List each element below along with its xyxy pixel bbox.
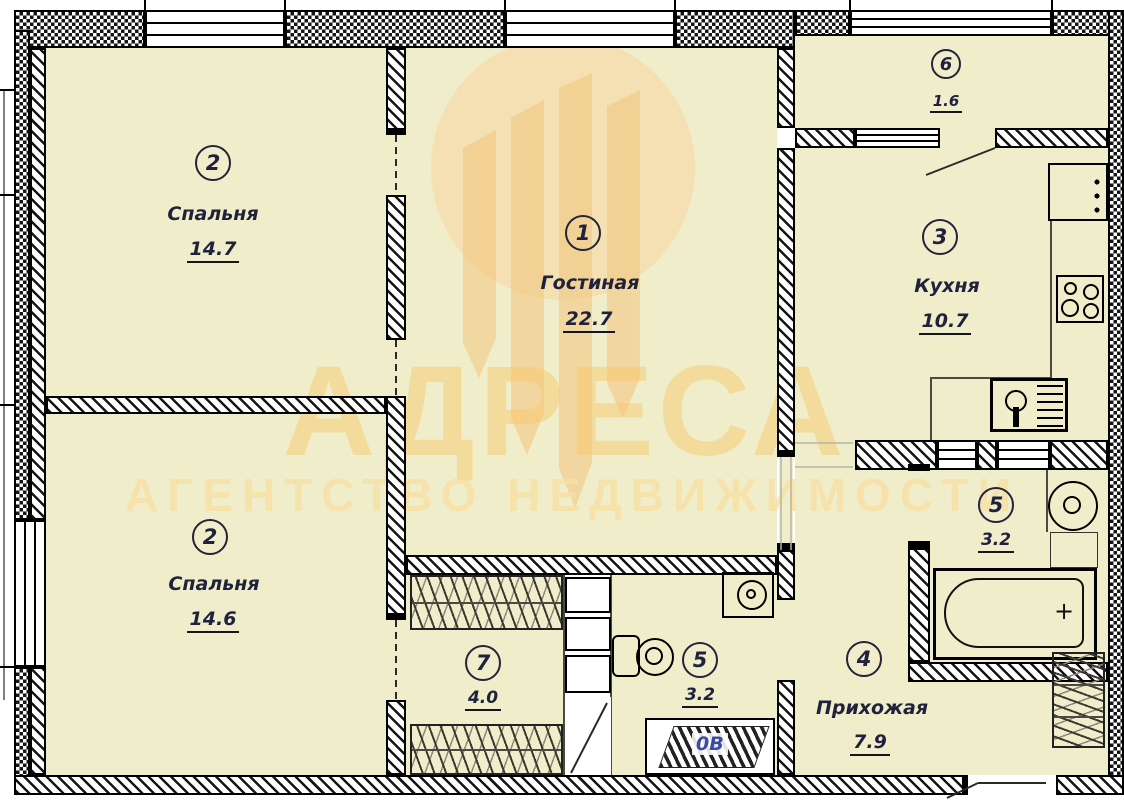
- door-gap-floor: [386, 135, 406, 195]
- room-number-bath: 5: [978, 487, 1014, 523]
- vent-label: 0В: [692, 733, 728, 755]
- room-area-bedroom-top: 14.7: [138, 238, 288, 260]
- door-jamb: [386, 128, 406, 135]
- room-area-kitchen: 10.7: [870, 310, 1020, 332]
- area-value: 10.7: [919, 310, 972, 335]
- room-number-bedroom-top: 2: [195, 145, 231, 181]
- wall-bedrooms-living: [386, 48, 406, 135]
- room-name-kitchen: Кухня: [872, 275, 1022, 297]
- room-area-wardrobe: 4.0: [408, 688, 558, 708]
- wall-balcony-kitchen: [795, 128, 855, 148]
- window-living: [505, 10, 675, 48]
- wall-top: [14, 10, 145, 48]
- room-area-living: 22.7: [514, 308, 664, 330]
- wall-bedrooms-living: [386, 195, 406, 340]
- wall-left-inner: [30, 48, 46, 520]
- vent-shaft-box: [565, 577, 611, 613]
- area-value: 22.7: [563, 308, 616, 333]
- bathtub-icon: +: [933, 568, 1097, 660]
- fridge-vents: [1094, 175, 1100, 213]
- burner: [1061, 299, 1079, 317]
- door-gap-floor: [777, 600, 795, 680]
- wall-living-kitchen: [777, 48, 795, 128]
- room-area-bath: 3.2: [921, 530, 1071, 550]
- door-jamb: [908, 464, 930, 471]
- area-value: 14.7: [187, 238, 240, 263]
- room-number-kitchen: 3: [922, 219, 958, 255]
- wall-hall-bath: [908, 548, 930, 662]
- room-number-balcony: 6: [931, 49, 961, 79]
- wall-wc-hall: [777, 680, 795, 775]
- wall-kitchen-hall: [977, 440, 997, 470]
- door-jamb: [777, 450, 795, 457]
- hall-closet-shelf: [1052, 652, 1105, 748]
- floor-plan: АДРЕСА АГЕНТСТВО НЕДВИЖИМОСТИ: [0, 0, 1124, 800]
- room-living-floor: [406, 48, 777, 555]
- vent-shaft-box: [565, 655, 611, 693]
- door-jamb: [962, 775, 968, 795]
- window-bedroom-top: [145, 10, 285, 48]
- wall-bottom: [1056, 775, 1124, 795]
- area-value: 14.6: [187, 608, 240, 633]
- wall-right: [1108, 10, 1124, 795]
- room-area-bedroom-bottom: 14.6: [138, 608, 288, 630]
- wc-door-clearance: [565, 697, 611, 775]
- wall-top-balcony: [795, 10, 850, 36]
- stove-icon: [1056, 275, 1104, 323]
- door-panel-bath: [937, 440, 977, 470]
- wall-bedrooms-living: [386, 700, 406, 775]
- room-area-wc: 3.2: [625, 685, 775, 705]
- shelf-line: [1054, 716, 1103, 718]
- door-jamb: [386, 613, 406, 620]
- wall-between-bedrooms: [46, 396, 386, 414]
- door-jamb: [777, 543, 795, 550]
- room-name-bedroom-bottom: Спальня: [139, 573, 289, 595]
- room-name-hall: Прихожая: [797, 697, 947, 719]
- door-gap-floor: [386, 620, 406, 700]
- room-number-hall: 4: [846, 641, 882, 677]
- wall-top: [285, 10, 505, 48]
- wardrobe-shelf: [410, 724, 563, 775]
- area-value: 4.0: [465, 688, 501, 711]
- toilet-bowl-inner: [645, 647, 663, 665]
- dimension-ticks-left: [0, 90, 14, 667]
- wall-balcony-kitchen: [995, 128, 1108, 148]
- bathtub-faucet-mark: +: [1054, 597, 1074, 625]
- washing-machine-icon: [722, 572, 774, 618]
- door-gap-floor: [386, 340, 406, 396]
- fridge-icon: [1048, 163, 1108, 221]
- kitchen-counter-line: [1050, 221, 1052, 377]
- area-value: 3.2: [682, 685, 718, 708]
- room-number-wardrobe: 7: [465, 645, 501, 681]
- wall-bottom: [14, 775, 968, 795]
- washer-drum-inner: [746, 589, 756, 599]
- shelf-line: [412, 749, 561, 751]
- room-name-living: Гостиная: [515, 272, 665, 294]
- wall-top: [675, 10, 795, 48]
- sink-drainboard: [1037, 383, 1063, 427]
- wall-living-kitchen: [777, 148, 795, 457]
- vent-shaft-box: [565, 617, 611, 651]
- window-balcony-door: [855, 128, 940, 148]
- room-name-bedroom-top: Спальня: [138, 203, 288, 225]
- wall-left-outer: [14, 30, 30, 520]
- room-hall-floor: [795, 440, 908, 775]
- kitchen-sink-icon: [990, 378, 1068, 432]
- area-value: 1.6: [930, 92, 963, 113]
- room-number-bedroom-bottom: 2: [192, 519, 228, 555]
- door-gap-floor: [940, 128, 995, 148]
- sink-faucet-stem: [1013, 407, 1019, 427]
- burner: [1064, 282, 1077, 295]
- area-value: 3.2: [978, 530, 1014, 553]
- wall-living-hall: [777, 550, 795, 600]
- window-balcony: [850, 10, 1052, 36]
- burner: [1083, 303, 1099, 319]
- kitchen-counter-line: [930, 377, 932, 440]
- wall-kitchen-hall: [1050, 440, 1108, 470]
- burner: [1083, 284, 1099, 300]
- room-number-living: 1: [565, 215, 601, 251]
- shelf-line: [412, 602, 561, 604]
- room-area-balcony: 1.6: [871, 92, 1021, 110]
- wall-left-inner: [30, 667, 46, 775]
- door-panel-bath: [997, 440, 1050, 470]
- area-value: 7.9: [850, 731, 890, 756]
- wardrobe-shelf: [410, 575, 563, 630]
- window-bedroom-bottom: [14, 520, 46, 667]
- room-area-hall: 7.9: [795, 731, 945, 753]
- room-number-wc: 5: [682, 642, 718, 678]
- shelf-line: [1054, 684, 1103, 686]
- washbasin-drain: [1063, 496, 1081, 514]
- dimension-ticks-top: [145, 0, 1052, 10]
- door-gap-floor: [779, 457, 793, 550]
- wall-bedrooms-living: [386, 396, 406, 620]
